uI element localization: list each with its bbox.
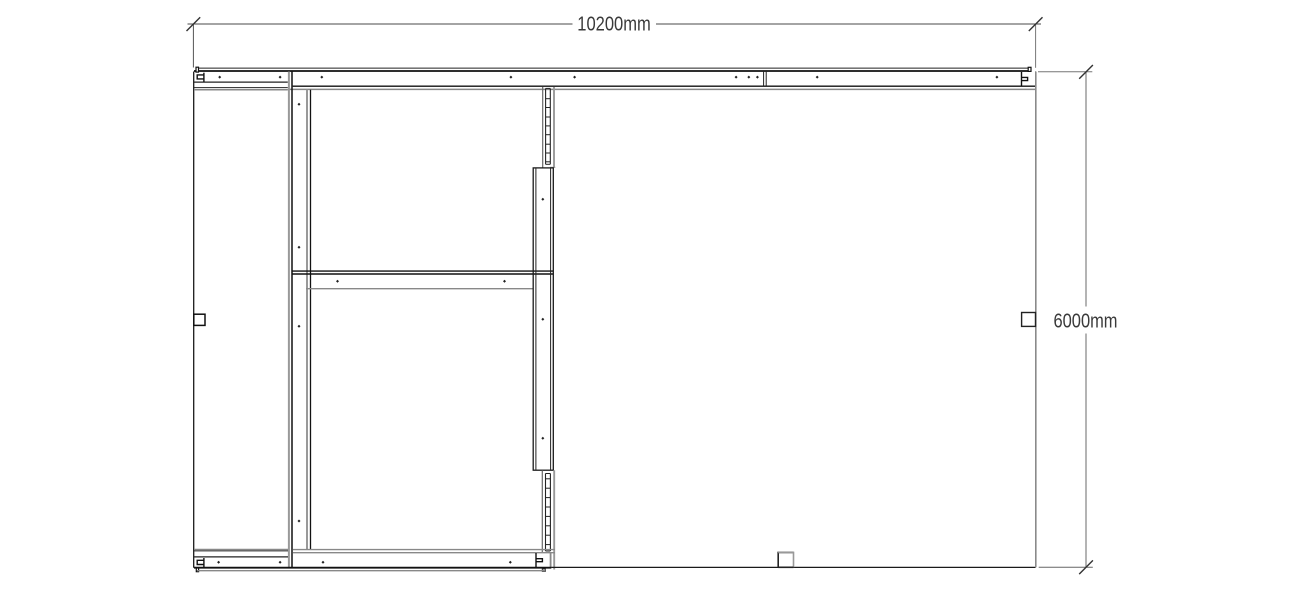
svg-text:10200mm: 10200mm <box>577 13 651 35</box>
svg-text:6000mm: 6000mm <box>1054 310 1118 332</box>
